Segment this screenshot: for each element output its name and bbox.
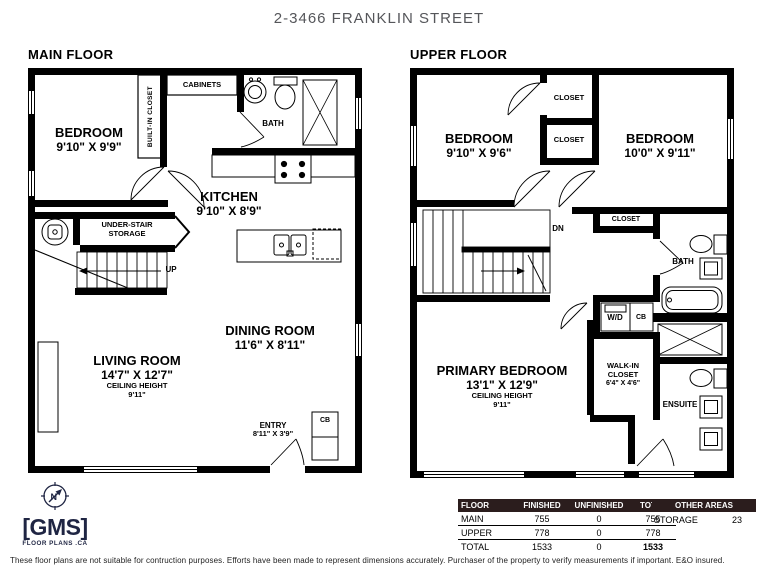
col-header-unfinished: UNFINISHED <box>568 499 630 512</box>
window-pane <box>84 469 197 470</box>
upper-floor-label: UPPER FLOOR <box>410 47 507 62</box>
toilet-icon <box>275 85 295 109</box>
area-table-row-total: TOTAL 1533 0 1533 <box>458 540 676 554</box>
area-table-row-main: MAIN 755 0 755 <box>458 512 676 526</box>
cabinets-label: CABINETS <box>183 81 221 90</box>
area-table-header-row: FLOOR FINISHED UNFINISHED TOTAL <box>458 499 676 512</box>
svg-text:N: N <box>51 492 58 502</box>
other-areas-row: STORAGE 23 <box>652 512 756 525</box>
main-floor-plan: BEDROOM 9'10" X 9'9" BUILT-IN CLOSET CAB… <box>28 68 362 473</box>
toilet-icon <box>690 236 712 253</box>
toilet-icon <box>690 370 712 387</box>
utility-fixture-icon <box>42 219 68 245</box>
window <box>727 118 734 160</box>
window <box>638 471 695 478</box>
window <box>410 222 417 267</box>
compass-icon: N <box>40 481 70 511</box>
other-areas: OTHER AREAS STORAGE 23 <box>652 499 756 525</box>
stove-icon <box>275 155 311 183</box>
dn-label: DN <box>552 224 564 233</box>
wd-label: W/D <box>607 313 623 322</box>
upper-floor-plan: BEDROOM 9'10" X 9'6" BEDROOM 10'0" X 9'1… <box>410 68 734 478</box>
ensuite-door-arc <box>637 439 674 466</box>
storage-opening-arrow <box>175 216 189 248</box>
toilet-tank <box>714 235 727 254</box>
room-label-bedroom-right: BEDROOM 10'0" X 9'11" <box>624 131 695 160</box>
window-pane <box>639 474 694 475</box>
under-stair-storage-label: UNDER-STAIR STORAGE <box>101 221 152 239</box>
area-table-row-upper: UPPER 778 0 778 <box>458 526 676 540</box>
sofa <box>38 342 58 432</box>
gms-wordmark: [GMS] <box>12 516 98 539</box>
main-floor-label: MAIN FLOOR <box>28 47 113 62</box>
bedroom-right-door-arc <box>559 171 595 207</box>
stairs-main <box>35 250 167 293</box>
other-areas-label: STORAGE <box>654 515 698 525</box>
window <box>28 90 35 115</box>
window-pane <box>576 474 624 475</box>
page-title: 2-3466 FRANKLIN STREET <box>0 10 758 27</box>
ensuite-label: ENSUITE <box>663 400 698 409</box>
bedroom-door-arc <box>131 167 164 200</box>
room-label-living: LIVING ROOM 14'7" X 12'7" CEILING HEIGHT… <box>93 353 180 400</box>
toilet-tank <box>274 77 297 85</box>
bath-sink-icon <box>700 258 722 279</box>
room-label-kitchen: KITCHEN 9'10" X 8'9" <box>196 189 261 218</box>
bath-fixtures <box>658 235 727 355</box>
bath-door-arc <box>240 112 264 147</box>
window <box>28 170 35 197</box>
ensuite-sink-icon <box>700 428 722 450</box>
stairs-upper <box>423 210 550 293</box>
entry-door-opening <box>270 466 305 473</box>
window <box>83 466 198 473</box>
window-pane <box>358 324 359 356</box>
ensuite-fixtures <box>690 369 727 450</box>
other-areas-header: OTHER AREAS <box>652 499 756 512</box>
window-pane <box>31 171 32 196</box>
dishwasher-icon <box>313 229 341 259</box>
closet-label: CLOSET <box>554 94 584 103</box>
gms-logo: N [GMS] FLOOR PLANS .CA <box>12 481 98 547</box>
bath-label: BATH <box>262 119 284 128</box>
closet-label: CLOSET <box>612 216 640 224</box>
bath-fixtures <box>244 77 337 145</box>
window-pane <box>424 474 524 475</box>
cb-label: CB <box>636 314 646 322</box>
window <box>410 125 417 167</box>
window-pane <box>730 119 731 159</box>
other-areas-value: 23 <box>732 515 742 525</box>
window-pane <box>31 91 32 114</box>
up-label: UP <box>165 265 176 274</box>
gms-tagline: FLOOR PLANS .CA <box>12 540 98 547</box>
window-pane <box>413 126 414 166</box>
window <box>355 97 362 130</box>
ensuite-sink-icon <box>700 396 722 418</box>
bath-sink-icon <box>244 81 266 103</box>
window <box>355 323 362 357</box>
primary-door-arc <box>561 303 587 329</box>
disclaimer-text: These floor plans are not suitable for c… <box>10 556 755 565</box>
cb-label: CB <box>320 417 330 425</box>
built-in-closet-label: BUILT-IN CLOSET <box>138 75 162 158</box>
col-header-finished: FINISHED <box>516 499 568 512</box>
room-label-bedroom-left: BEDROOM 9'10" X 9'6" <box>445 131 513 160</box>
window-pane <box>358 98 359 129</box>
entry-door-arc <box>271 439 304 465</box>
room-label-primary: PRIMARY BEDROOM 13'1" X 12'9" CEILING HE… <box>437 363 568 410</box>
room-label-bedroom: BEDROOM 9'10" X 9'9" <box>55 125 123 154</box>
closet-door-arc <box>508 83 540 115</box>
col-header-floor: FLOOR <box>458 499 516 512</box>
window <box>575 471 625 478</box>
area-table: FLOOR FINISHED UNFINISHED TOTAL MAIN 755… <box>458 499 676 553</box>
stairs-dn-arrowhead <box>517 268 525 275</box>
walk-in-closet-label: WALK-IN CLOSET 6'4" X 4'6" <box>606 362 640 388</box>
window <box>423 471 525 478</box>
window-pane <box>413 223 414 266</box>
closet-label: CLOSET <box>554 136 584 145</box>
room-label-dining: DINING ROOM 11'6" X 8'11" <box>225 323 315 352</box>
bath-label: BATH <box>672 257 694 266</box>
bedroom-left-door-arc <box>514 171 550 207</box>
toilet-tank <box>714 369 727 388</box>
entry-label: ENTRY 8'11" X 3'9" <box>253 421 293 439</box>
